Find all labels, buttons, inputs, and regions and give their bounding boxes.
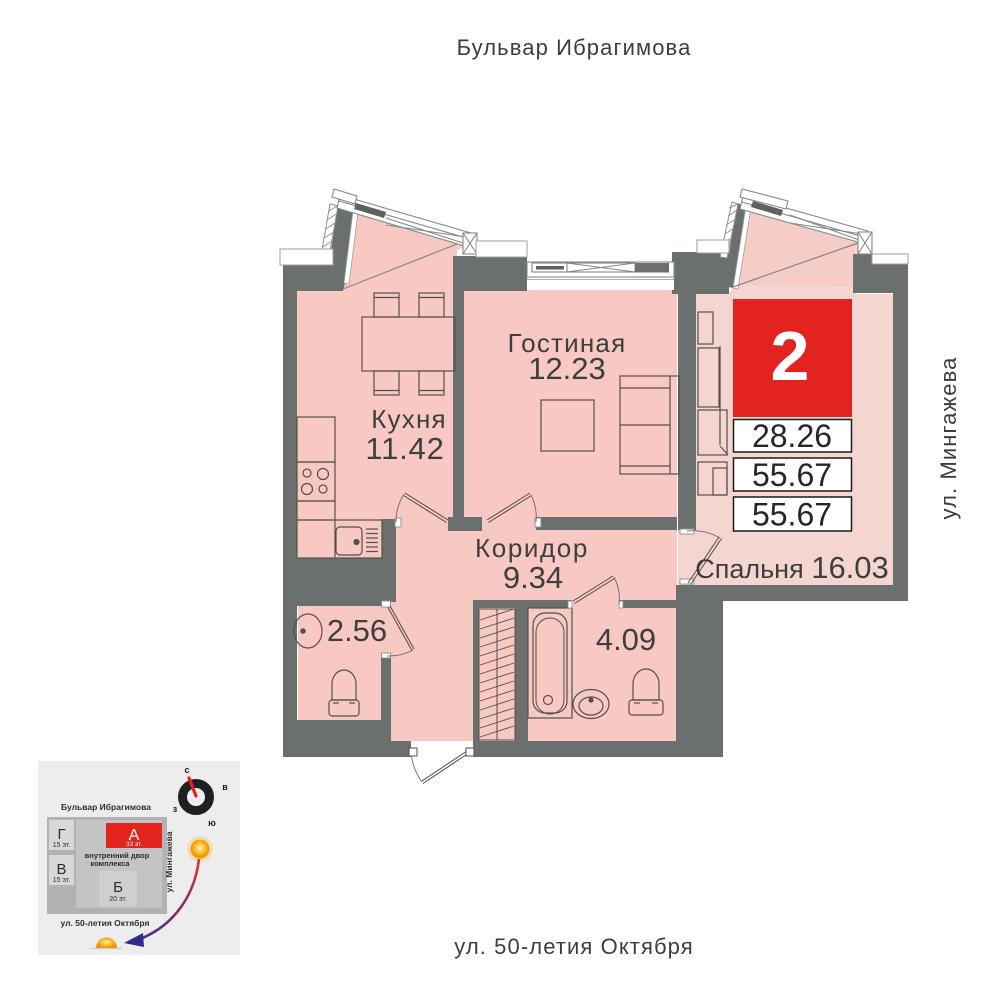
- svg-text:Коридор: Коридор: [475, 533, 589, 563]
- svg-text:11.42: 11.42: [365, 431, 444, 466]
- svg-text:33 эт.: 33 эт.: [126, 841, 142, 848]
- svg-text:ул. 50-летия Октября: ул. 50-летия Октября: [61, 918, 150, 928]
- svg-text:Г: Г: [57, 826, 65, 843]
- svg-text:Бульвар Ибрагимова: Бульвар Ибрагимова: [457, 35, 692, 60]
- svg-text:15 эт.: 15 эт.: [53, 877, 71, 884]
- svg-text:Б: Б: [113, 879, 123, 896]
- svg-text:ю: ю: [208, 818, 216, 828]
- svg-text:9.34: 9.34: [503, 560, 563, 595]
- svg-text:в: в: [222, 782, 228, 792]
- svg-text:ул. Мингажева: ул. Мингажева: [164, 831, 174, 892]
- svg-text:ул. Мингажева: ул. Мингажева: [936, 356, 961, 519]
- svg-text:4.09: 4.09: [596, 622, 656, 657]
- svg-text:15 эт.: 15 эт.: [53, 842, 71, 849]
- svg-text:з: з: [173, 804, 178, 814]
- svg-text:Спальня 16.03: Спальня 16.03: [695, 550, 889, 585]
- svg-text:12.23: 12.23: [528, 351, 606, 386]
- svg-text:20 эт.: 20 эт.: [109, 896, 127, 903]
- svg-text:Бульвар Ибрагимова: Бульвар Ибрагимова: [61, 802, 151, 812]
- svg-text:В: В: [56, 861, 66, 878]
- svg-text:Кухня: Кухня: [371, 404, 447, 434]
- svg-text:28.26: 28.26: [752, 418, 832, 454]
- svg-text:2.56: 2.56: [327, 613, 387, 648]
- svg-text:55.67: 55.67: [752, 497, 832, 533]
- svg-text:55.67: 55.67: [752, 457, 832, 493]
- svg-text:комплекса: комплекса: [90, 859, 130, 868]
- svg-text:ул. 50-летия Октября: ул. 50-летия Октября: [454, 934, 694, 959]
- svg-text:2: 2: [771, 317, 810, 395]
- svg-text:с: с: [184, 765, 189, 775]
